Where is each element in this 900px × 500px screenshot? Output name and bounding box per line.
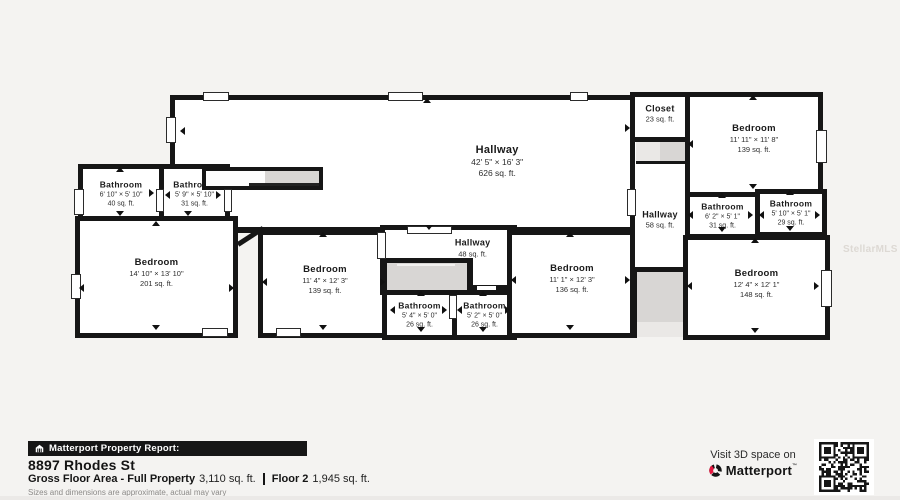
- dimension-arrow: [511, 276, 516, 284]
- room-dimensions: 5' 10" × 5' 1": [770, 209, 813, 218]
- stairs-upper-light: [636, 142, 660, 161]
- floor-label: Floor 2: [272, 473, 309, 485]
- matterport-report-badge: Matterport Property Report:: [28, 441, 307, 456]
- door-opening: [477, 286, 496, 290]
- room-label: Bedroom 14' 10" × 13' 10" 201 sq. ft.: [129, 257, 183, 289]
- room-name: Bathroom: [463, 300, 506, 311]
- room-bedroom-148: Bedroom 12' 4" × 12' 1" 148 sq. ft.: [683, 235, 830, 340]
- dimension-arrow: [749, 184, 757, 189]
- dimension-arrow: [390, 306, 395, 314]
- dimension-arrow: [479, 327, 487, 332]
- stairs-lower-fade: [637, 322, 683, 337]
- room-bedroom-139-middle: Bedroom 11' 4" × 12' 3" 139 sq. ft.: [258, 230, 392, 338]
- closet-shelf-line: [249, 183, 319, 186]
- dimension-arrow: [423, 98, 431, 103]
- property-address: 8897 Rhodes St: [28, 457, 135, 473]
- dimension-arrow: [152, 325, 160, 330]
- room-label: Bedroom 11' 1" × 12' 3" 136 sq. ft.: [549, 263, 594, 295]
- room-area: 58 sq. ft.: [642, 220, 678, 230]
- dimension-arrow: [442, 306, 447, 314]
- door-marker: [449, 295, 457, 319]
- dimension-arrow: [319, 325, 327, 330]
- window-marker: [816, 130, 827, 163]
- dimension-arrow: [625, 124, 630, 132]
- window-marker: [377, 232, 386, 259]
- gross-floor-area-value: 3,110 sq. ft.: [199, 473, 256, 485]
- dimension-arrow: [457, 306, 462, 314]
- room-label: Bedroom 11' 4" × 12' 3" 139 sq. ft.: [302, 264, 347, 296]
- room-bathroom-26a: Bathroom 5' 4" × 5' 0" 26 sq. ft.: [382, 290, 457, 340]
- window-marker: [166, 117, 176, 143]
- dimension-arrow: [116, 211, 124, 216]
- gross-floor-area-label: Gross Floor Area - Full Property: [28, 473, 195, 485]
- dimension-arrow: [380, 278, 385, 286]
- window-marker: [276, 328, 301, 337]
- window-marker: [821, 270, 832, 307]
- room-area: 136 sq. ft.: [549, 285, 594, 295]
- room-label: Closet 23 sq. ft.: [645, 103, 674, 124]
- window-marker: [570, 92, 588, 101]
- room-label: Hallway 48 sq. ft.: [455, 238, 491, 259]
- room-name: Bedroom: [302, 264, 347, 276]
- room-area: 31 sq. ft.: [173, 199, 216, 208]
- room-bedroom-201: Bedroom 14' 10" × 13' 10" 201 sq. ft.: [75, 216, 238, 338]
- room-dimensions: 12' 4" × 12' 1": [734, 280, 780, 290]
- dimension-arrow: [688, 140, 693, 148]
- floor-area-metrics: Gross Floor Area - Full Property 3,110 s…: [28, 473, 370, 485]
- dimension-arrow: [687, 282, 692, 290]
- dimension-arrow: [688, 211, 693, 219]
- floor-value: 1,945 sq. ft.: [312, 473, 369, 485]
- dimension-arrow: [79, 284, 84, 292]
- room-area: 148 sq. ft.: [734, 290, 780, 300]
- room-dimensions: 14' 10" × 13' 10": [129, 269, 183, 279]
- room-name: Bathroom: [100, 179, 143, 190]
- dimension-arrow: [417, 291, 425, 296]
- dimension-arrow: [751, 328, 759, 333]
- dimension-arrow: [216, 191, 221, 199]
- room-label: Bathroom 6' 10" × 5' 10" 40 sq. ft.: [100, 179, 143, 208]
- room-dimensions: 6' 10" × 5' 10": [100, 190, 143, 199]
- dimension-arrow: [718, 227, 726, 232]
- visit-3d-text: Visit 3D space on: [700, 449, 806, 461]
- dimension-arrow: [566, 325, 574, 330]
- dimension-arrow: [748, 211, 753, 219]
- dimension-arrow: [625, 276, 630, 284]
- brand-text: Matterport: [726, 463, 792, 478]
- dimension-arrow: [718, 193, 726, 198]
- matterport-brand: Matterport™: [696, 463, 810, 478]
- dimension-arrow: [786, 226, 794, 231]
- room-dimensions: 5' 9" × 5' 10": [173, 190, 216, 199]
- report-badge-label: Matterport Property Report:: [49, 443, 180, 454]
- room-dimensions: 11' 11" × 11' 8": [730, 135, 778, 145]
- matterport-logo-icon: [709, 464, 722, 477]
- qr-code: [814, 439, 874, 495]
- building-icon: [35, 444, 44, 453]
- window-marker: [388, 92, 423, 101]
- floorplan-page: Hallway 42' 5" × 16' 3" 626 sq. ft. Bath…: [0, 0, 900, 500]
- matterport-wordmark: Matterport™: [726, 463, 797, 478]
- watermark-stellar-mls: StellarMLS: [843, 244, 898, 255]
- dimension-arrow: [815, 211, 820, 219]
- room-name: Closet: [645, 103, 674, 115]
- dimension-arrow: [262, 278, 267, 286]
- room-area: 139 sq. ft.: [302, 286, 347, 296]
- room-area: 201 sq. ft.: [129, 279, 183, 289]
- divider: [263, 473, 265, 485]
- room-hallway-main: Hallway 42' 5" × 16' 3" 626 sq. ft.: [170, 95, 637, 232]
- room-closet-23: Closet 23 sq. ft.: [630, 92, 690, 142]
- room-label: Hallway 58 sq. ft.: [642, 209, 678, 230]
- room-dimensions: 42' 5" × 16' 3": [471, 157, 523, 168]
- stairs-lower: [637, 272, 683, 322]
- room-label: Bedroom 11' 11" × 11' 8" 139 sq. ft.: [730, 123, 778, 155]
- dimension-arrow: [566, 232, 574, 237]
- room-label: Bedroom 12' 4" × 12' 1" 148 sq. ft.: [734, 268, 780, 300]
- room-name: Bedroom: [730, 123, 778, 135]
- dimension-arrow: [165, 191, 170, 199]
- room-dimensions: 11' 4" × 12' 3": [302, 277, 347, 287]
- dimension-arrow: [759, 211, 764, 219]
- room-bedroom-139-right: Bedroom 11' 11" × 11' 8" 139 sq. ft.: [685, 92, 823, 197]
- room-name: Bathroom: [701, 201, 744, 212]
- dimension-arrow: [229, 284, 234, 292]
- dimension-arrow: [786, 190, 794, 195]
- dimension-arrow: [425, 225, 433, 230]
- room-name: Bathroom: [398, 300, 441, 311]
- room-name: Bedroom: [549, 263, 594, 275]
- window-marker: [203, 92, 229, 101]
- stairs-middle: [387, 263, 467, 290]
- dimension-arrow: [749, 95, 757, 100]
- room-name: Bedroom: [129, 257, 183, 269]
- trademark-mark: ™: [792, 463, 797, 469]
- room-dimensions: 5' 2" × 5' 0": [463, 311, 506, 320]
- room-label: Bathroom 5' 2" × 5' 0" 26 sq. ft.: [463, 300, 506, 329]
- room-label: Bathroom 5' 4" × 5' 0" 26 sq. ft.: [398, 300, 441, 329]
- room-label: Bathroom 6' 2" × 5' 1" 31 sq. ft.: [701, 201, 744, 230]
- dimension-arrow: [417, 327, 425, 332]
- room-bedroom-136: Bedroom 11' 1" × 12' 3" 136 sq. ft.: [507, 230, 637, 338]
- room-area: 40 sq. ft.: [100, 199, 143, 208]
- dimension-arrow: [319, 232, 327, 237]
- door-marker: [156, 189, 164, 212]
- room-area: 23 sq. ft.: [645, 115, 674, 125]
- room-name: Bathroom: [770, 198, 813, 209]
- room-label: Hallway 42' 5" × 16' 3" 626 sq. ft.: [471, 143, 523, 179]
- room-name: Bedroom: [734, 268, 780, 280]
- hall-closet: [202, 167, 323, 190]
- window-marker: [74, 189, 84, 215]
- door-marker: [224, 189, 232, 212]
- room-name: Hallway: [471, 143, 523, 157]
- dimension-arrow: [180, 127, 185, 135]
- wall-segment: [630, 267, 637, 337]
- window-marker: [202, 328, 228, 337]
- dimension-arrow: [116, 167, 124, 172]
- room-name: Hallway: [455, 238, 491, 250]
- door-marker: [627, 189, 636, 216]
- dimension-arrow: [751, 238, 759, 243]
- page-bottom-edge: [0, 496, 900, 500]
- room-label: Bathroom 5' 10" × 5' 1" 29 sq. ft.: [770, 198, 813, 227]
- room-name: Hallway: [642, 209, 678, 221]
- dimension-arrow: [152, 221, 160, 226]
- dimension-arrow: [814, 282, 819, 290]
- dimension-arrow: [505, 306, 510, 314]
- dimension-arrow: [149, 189, 154, 197]
- stair-nosing: [397, 264, 455, 266]
- dimension-arrow: [479, 291, 487, 296]
- room-area: 139 sq. ft.: [730, 145, 778, 155]
- room-area: 626 sq. ft.: [471, 168, 523, 179]
- room-dimensions: 5' 4" × 5' 0": [398, 311, 441, 320]
- room-dimensions: 6' 2" × 5' 1": [701, 212, 744, 221]
- dimension-arrow: [184, 211, 192, 216]
- room-dimensions: 11' 1" × 12' 3": [549, 276, 594, 286]
